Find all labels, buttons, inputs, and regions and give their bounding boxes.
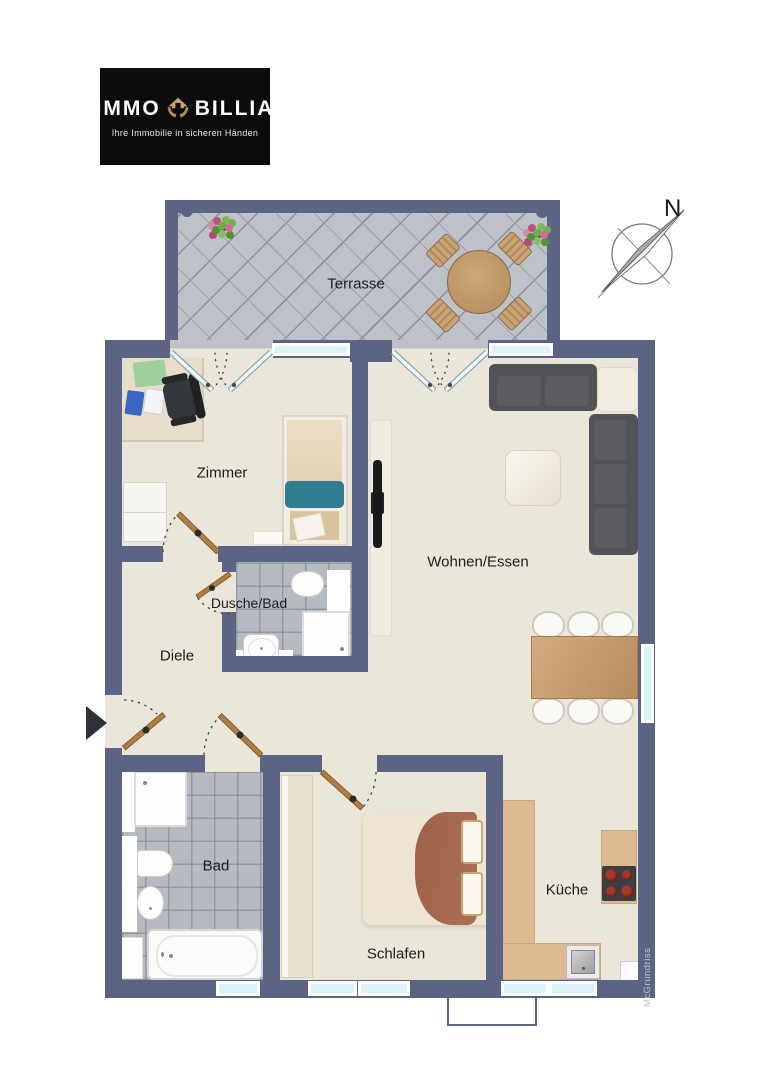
entrance-arrow-icon [86,706,107,740]
french-door-opening [392,340,488,358]
dining-chair [532,698,565,725]
cooktop [602,866,636,901]
window [358,981,410,996]
window [216,981,260,996]
terrace-wall-right [547,200,560,345]
compass-north-label: N [664,195,681,222]
pillow [461,872,483,916]
window [272,343,350,356]
window [489,343,553,356]
window [549,981,597,996]
window [641,644,654,723]
room-label-bad: Bad [203,858,230,875]
light-well [447,998,537,1026]
wall-left-lower [105,748,122,998]
logo-brand-left: IMMO [96,97,161,121]
dining-chair [532,611,565,638]
pillow [461,820,483,864]
room-label-diele: Diele [160,648,194,665]
dining-chair [601,698,634,725]
room-label-schlafen: Schlafen [367,946,425,963]
dining-table [531,636,638,699]
room-label-terrasse: Terrasse [327,276,385,293]
wall-diele-south-b [260,755,322,772]
french-door-opening [170,340,273,358]
logo-brand-right: BILLIA [195,97,275,121]
terrace-corner-dot [536,206,548,218]
bidet [137,886,164,920]
tv [373,460,382,548]
side-table [597,367,638,412]
flower-pot [533,229,541,237]
logo-tagline: Ihre Immobilie in sicheren Händen [112,128,258,138]
sofa-top [489,364,597,411]
room-label-kueche: Küche [546,882,589,899]
room-label-zimmer: Zimmer [197,465,248,482]
shower-tray [302,611,350,659]
terrace-table [447,250,511,314]
dining-chair [567,698,600,725]
toilet [291,571,324,597]
wall-bad-schlafen [263,772,280,980]
wall-zimmer-south-b [218,546,368,562]
single-bed [282,415,348,546]
compass-icon: N [592,188,712,306]
wall-left-upper [105,340,122,695]
coffee-table [505,450,561,506]
toilet [137,850,173,877]
dining-chair [601,611,634,638]
house-in-hands-icon [164,96,192,122]
wall-zimmer-south-a [122,546,163,562]
watermark: McGrundriss [642,912,653,1007]
terrace-wall-top [165,200,560,213]
logo-brand: IMMO BILLIA [96,96,275,122]
wardrobe [281,775,313,978]
bathtub [147,929,263,980]
kitchen-sink [566,945,600,979]
terrace-corner-dot [181,205,193,217]
bath-niche [122,836,137,932]
shower-tray [134,771,187,827]
teal-blanket [285,481,344,508]
window [308,981,357,996]
wall-schlafen-kueche [486,772,503,980]
floorplan-canvas: IMMO BILLIA Ihre Immobilie in sicheren H… [0,0,764,1080]
logo: IMMO BILLIA Ihre Immobilie in sicheren H… [100,68,270,165]
wall-dusche-west-a [222,562,236,572]
wall-diele-south-c [377,755,503,772]
wardrobe [123,482,167,542]
dining-chair [567,611,600,638]
wall-stub-top [350,340,392,362]
wall-diele-south-a [122,755,205,772]
kitchen-appliance [620,961,640,981]
double-bed [363,812,490,925]
window [501,981,549,996]
room-label-dusche-bad: Dusche/Bad [211,595,287,611]
room-label-wohnen-essen: Wohnen/Essen [427,554,528,571]
sofa-right [589,414,638,555]
wall-dusche-south [222,656,368,672]
terrace-wall-left [165,200,178,345]
kitchen-counter-left [501,800,535,945]
flower-pot [218,222,226,230]
wall-zimmer-wohnen [352,362,368,672]
